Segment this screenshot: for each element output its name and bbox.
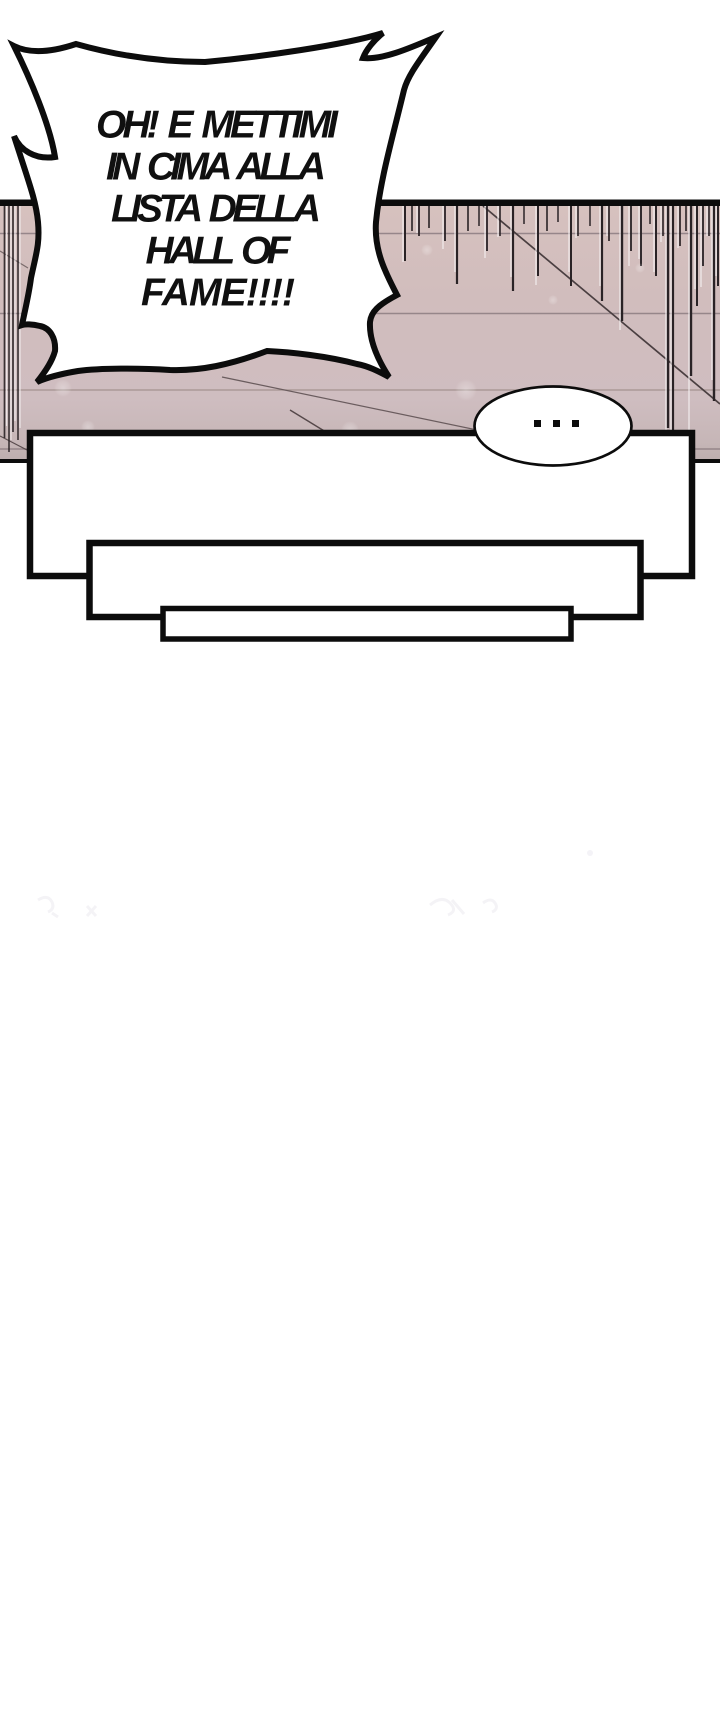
svg-text:IN CIMA ALLA: IN CIMA ALLA (106, 146, 326, 189)
svg-text:OH! E METTIMI: OH! E METTIMI (96, 104, 339, 147)
svg-text:FAME!!!!: FAME!!!! (141, 272, 295, 315)
svg-text:LISTA DELLA: LISTA DELLA (111, 188, 321, 231)
svg-text:HALL OF: HALL OF (146, 230, 292, 273)
